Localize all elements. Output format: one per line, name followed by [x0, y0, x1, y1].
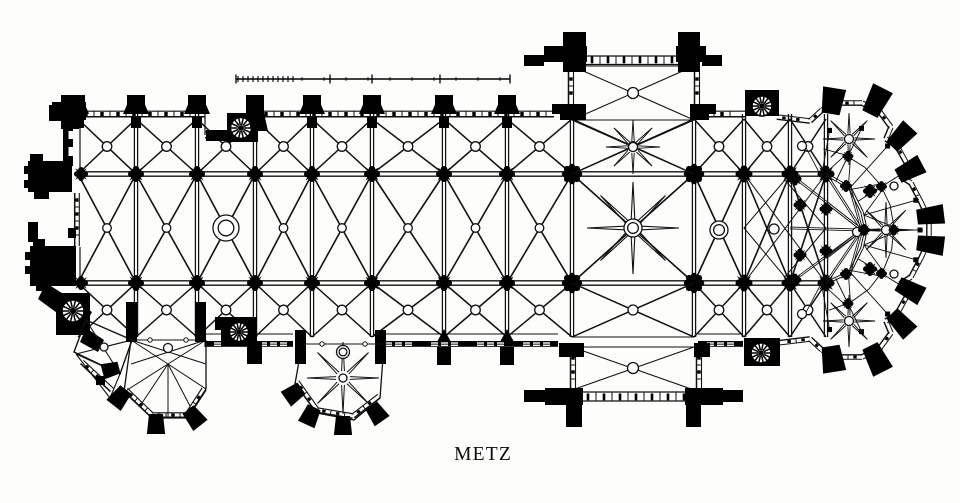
svg-text:METZ: METZ: [454, 444, 512, 465]
